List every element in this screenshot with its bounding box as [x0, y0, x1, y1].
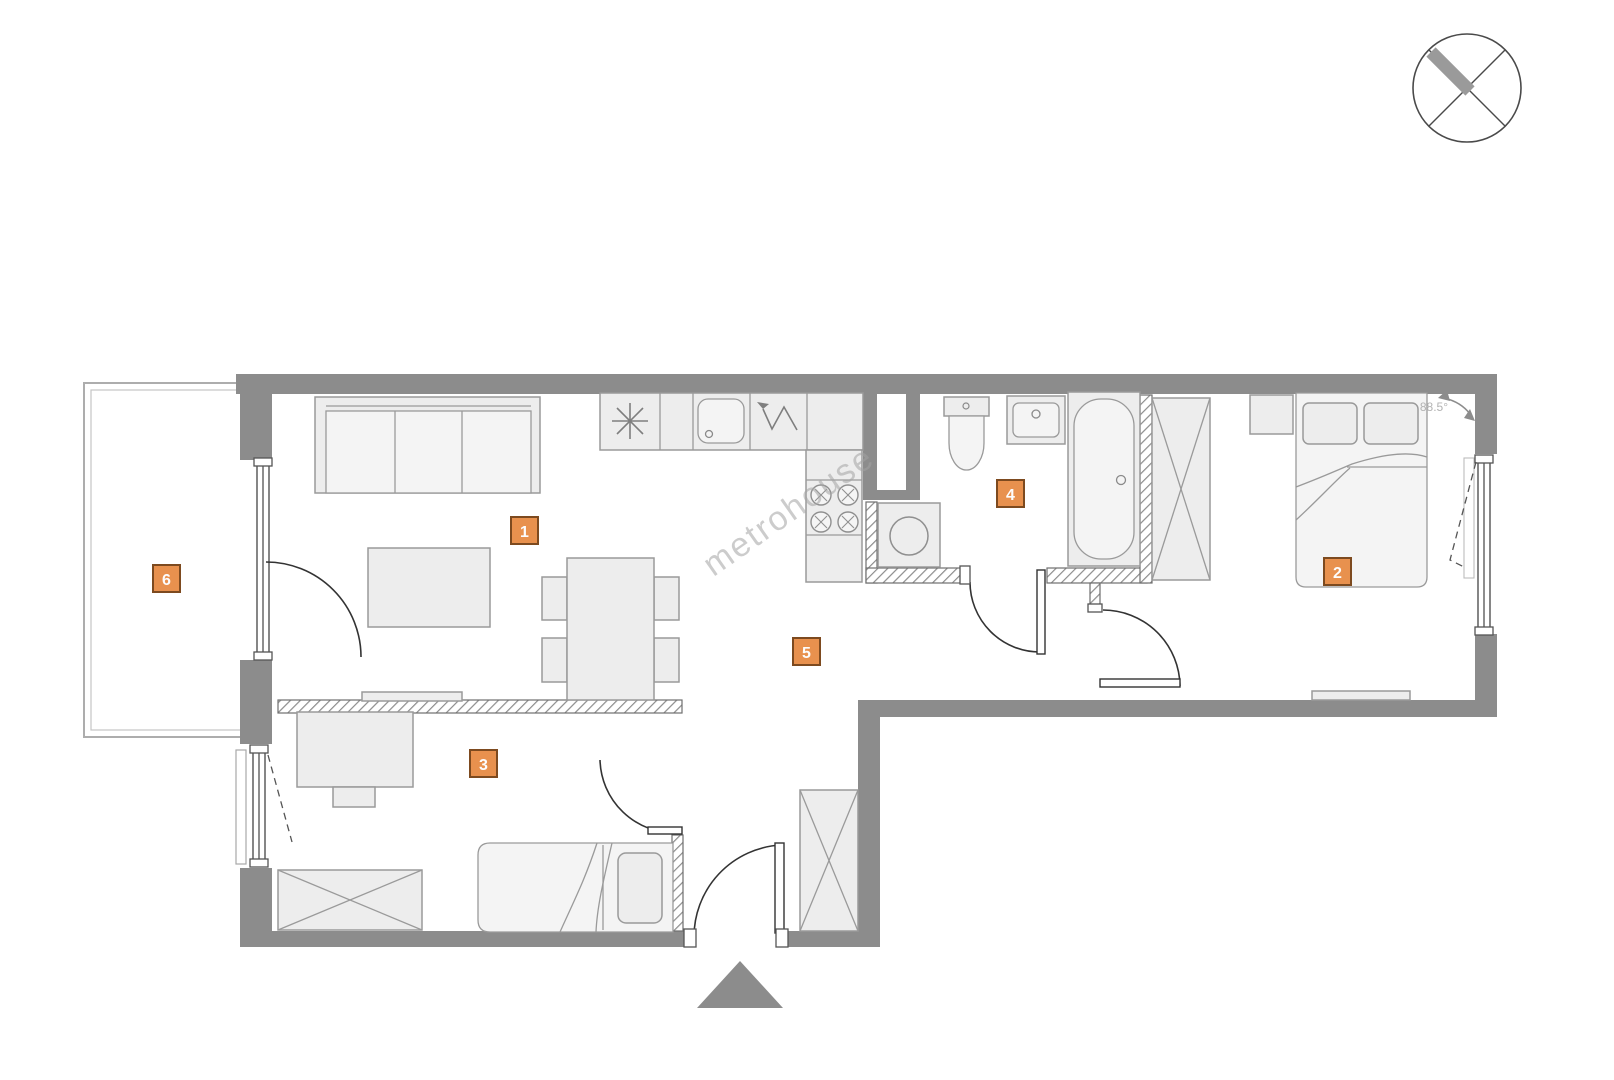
balcony-door-arc — [266, 562, 361, 657]
nightstand — [1250, 395, 1293, 434]
partition-room3-north — [278, 700, 682, 713]
angle-annotation: 88.5° — [1420, 390, 1475, 421]
badge-room-6: 6 — [153, 565, 180, 592]
toilet — [944, 397, 989, 470]
room3-window — [236, 745, 292, 867]
dining-chair — [654, 577, 679, 620]
hall-wardrobe — [800, 790, 858, 931]
badge-room-2-number: 2 — [1333, 565, 1342, 582]
pillow — [618, 853, 662, 923]
partition-bathroom-south-left — [866, 568, 962, 583]
bedroom-shelf — [1312, 691, 1410, 700]
double-bed — [1296, 393, 1427, 587]
wall-bottom-right — [858, 700, 1497, 717]
badge-room-1: 1 — [511, 517, 538, 544]
badge-room-4-number: 4 — [1006, 487, 1015, 504]
badge-room-5-number: 5 — [802, 645, 811, 662]
badge-room-6-number: 6 — [162, 572, 171, 589]
room3-window-sill — [236, 750, 246, 864]
room3-wardrobe — [278, 870, 422, 930]
bedroom-wardrobe — [1152, 398, 1210, 580]
dining-table — [567, 558, 654, 700]
badge-room-4: 4 — [997, 480, 1024, 507]
dining-chair — [654, 638, 679, 682]
wall-shaft-right — [906, 394, 920, 500]
kitchen-sink — [698, 399, 744, 443]
balcony — [84, 383, 250, 737]
wash-basin — [1007, 396, 1065, 444]
hallway — [800, 790, 858, 931]
washing-machine — [878, 503, 940, 567]
entrance-arrow — [697, 961, 783, 1008]
opening-balcony-door — [236, 460, 276, 660]
single-bed — [478, 843, 673, 932]
floor-plan-drawing: metrohouse 88.5° 1 2 3 4 — [0, 0, 1614, 1080]
room3-door — [600, 760, 682, 834]
bathroom-door — [960, 566, 1045, 654]
wall-top — [236, 374, 1497, 394]
angle-label: 88.5° — [1420, 400, 1448, 414]
wall-hall-east — [858, 700, 880, 947]
desk — [297, 712, 413, 787]
room-3 — [278, 712, 673, 932]
north-compass-icon — [1413, 34, 1521, 142]
badge-room-3-number: 3 — [479, 757, 488, 774]
bedroom — [1152, 393, 1427, 700]
pillow — [1364, 403, 1418, 444]
fridge-snowflake-icon — [612, 403, 648, 439]
bedroom-door — [1088, 604, 1180, 687]
opening-entrance-door — [686, 929, 776, 949]
bathtub — [1068, 392, 1140, 566]
partition-bathroom-south-right — [1047, 568, 1147, 583]
dining-set — [542, 558, 679, 700]
badge-room-3: 3 — [470, 750, 497, 777]
living-shelf — [362, 692, 462, 701]
sofa — [315, 397, 540, 493]
badge-room-2: 2 — [1324, 558, 1351, 585]
dining-chair — [542, 577, 567, 620]
coffee-table — [368, 548, 490, 627]
badge-room-1-number: 1 — [520, 524, 529, 541]
balcony-door-window — [254, 458, 272, 660]
badge-room-5: 5 — [793, 638, 820, 665]
desk-chair — [333, 787, 375, 807]
balcony-inner-outline — [91, 390, 243, 730]
pillow — [1303, 403, 1357, 444]
partition-bathroom-east — [1140, 395, 1152, 583]
floor-plan-page: metrohouse 88.5° 1 2 3 4 — [0, 0, 1614, 1080]
dining-chair — [542, 638, 567, 682]
wall-shaft-bottom — [863, 490, 920, 500]
